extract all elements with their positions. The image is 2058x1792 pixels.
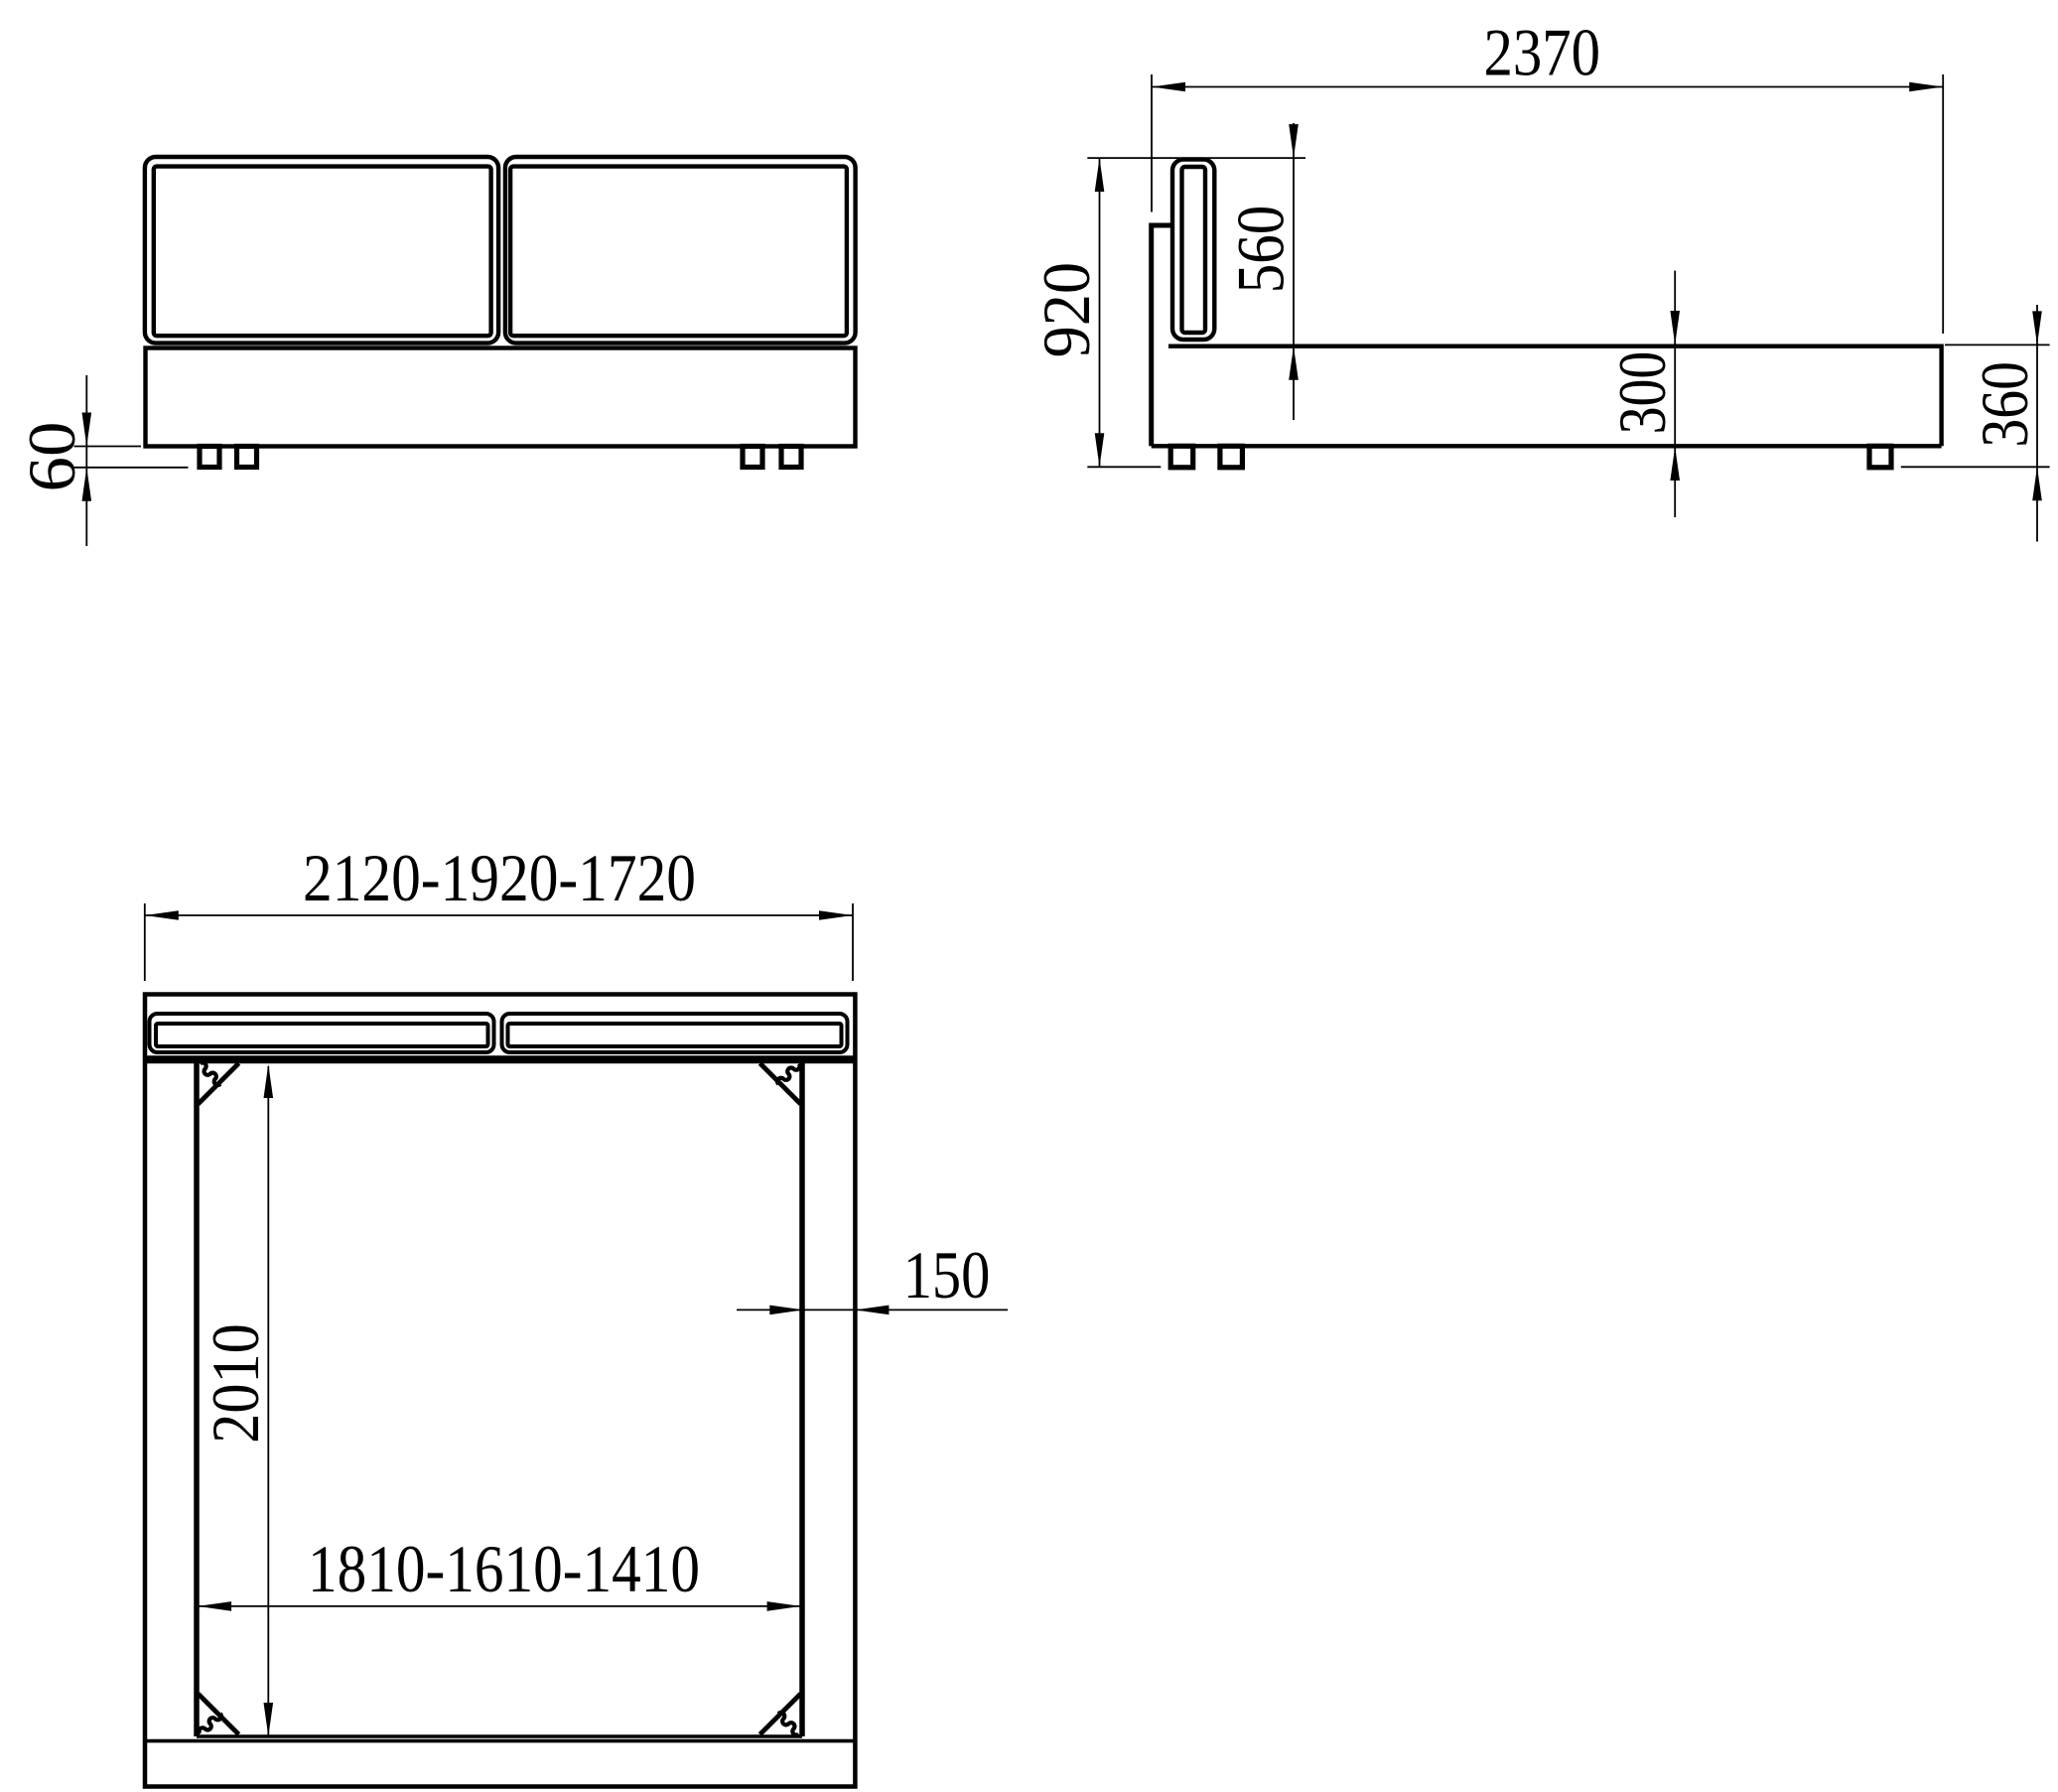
svg-text:2370: 2370 — [1484, 15, 1601, 90]
svg-text:1810-1610-1410: 1810-1610-1410 — [308, 1531, 700, 1606]
svg-text:920: 920 — [1029, 262, 1104, 357]
svg-text:560: 560 — [1222, 206, 1298, 294]
svg-text:300: 300 — [1604, 351, 1680, 435]
svg-text:360: 360 — [1967, 361, 2042, 448]
svg-text:150: 150 — [903, 1237, 991, 1312]
svg-text:2120-1920-1720: 2120-1920-1720 — [303, 840, 696, 915]
svg-text:2010: 2010 — [198, 1323, 273, 1444]
svg-text:60: 60 — [14, 422, 89, 492]
